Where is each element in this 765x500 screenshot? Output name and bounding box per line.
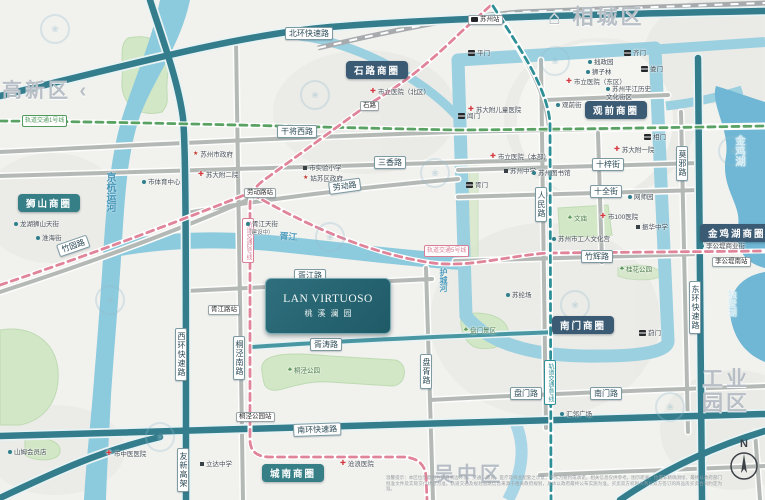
hospital-label: ✚市中医医院 [106, 450, 146, 459]
park-label: ♣文庙 [568, 215, 587, 224]
place-label: 观前街 [556, 102, 582, 110]
place-icon [586, 70, 590, 74]
place-label: 苏纶场 [506, 292, 532, 300]
road-name-label: 十全街 [590, 185, 622, 198]
compass: N [726, 438, 762, 486]
water-name: 京杭运河 [102, 172, 117, 212]
place-label: 市体育中心 [142, 179, 181, 187]
gate-label: 齐门 [624, 50, 646, 58]
place-label: 汇邻广场 [560, 411, 592, 419]
business-circle-badge: 狮山商圈 [18, 194, 80, 212]
compass-north-label: N [726, 438, 762, 450]
map-labels-layer: 高新区 ‹⌂ 相城区工业 园区吴中区京杭运河护城河金鸡湖独墅湖胥江北环快速路干将… [0, 0, 765, 500]
park-icon: ♣ [288, 367, 292, 375]
school-label: 市实验小学 [303, 165, 342, 173]
school-icon [636, 225, 640, 229]
gate-label: 娄门 [641, 66, 663, 74]
gate-icon [624, 50, 631, 56]
gov-label: ★姑苏区政府 [303, 175, 343, 184]
hospital-icon: ✚ [600, 213, 606, 222]
business-circle-badge: 南门商圈 [552, 316, 614, 334]
park-icon: ♣ [568, 215, 572, 223]
place-icon [36, 236, 40, 240]
park-label: ♣桂花公园 [620, 266, 652, 275]
water-name: 胥江 [279, 229, 298, 243]
hospital-label: ✚市立医院（北区） [370, 88, 430, 97]
hospital-label: ✚苏大附一院 [614, 146, 654, 155]
business-circle-badge: 金鸡湖商圈 [700, 224, 765, 242]
road-name-label: 十梓街 [592, 158, 624, 171]
road-name-label: 北环快速路 [285, 27, 333, 40]
place-icon [8, 450, 12, 454]
place-icon [628, 195, 632, 199]
place-label: 网师园 [628, 194, 654, 202]
school-label: 振华中学 [636, 224, 668, 232]
place-label: 山姆会员店 [8, 449, 47, 457]
place-icon [506, 293, 510, 297]
place-label: 胥江天街 [246, 221, 278, 229]
gate-icon [466, 182, 473, 188]
place-icon [556, 103, 560, 107]
hospital-label: ✚市100医院 [600, 213, 638, 222]
place-label: 苏州平江历史 文化街区 [606, 86, 651, 102]
place-icon [532, 171, 536, 175]
place-icon [606, 87, 610, 91]
place-label: 龙湖狮山天街 [14, 221, 59, 229]
gate-label: 相门 [644, 134, 666, 142]
road-name-label: 胥涛路 [310, 338, 342, 351]
metro-station-label: 桐泾公园站 [236, 412, 275, 422]
water-name: 独墅湖 [726, 290, 739, 317]
place-icon [246, 222, 250, 226]
gov-label: ★苏州市政府 [193, 151, 233, 160]
gate-label: 阊门 [458, 113, 480, 121]
school-icon [504, 169, 508, 173]
business-circle-badge: 观前商圈 [585, 101, 647, 119]
metro-station-label: 胥江路站 [208, 305, 240, 315]
road-name-label: 桐泾南路 [233, 336, 245, 380]
metro-line-label: 轨道交通5号线 [424, 245, 469, 257]
gate-icon [639, 330, 646, 336]
park-icon: ♣ [620, 266, 624, 274]
road-name-label: 盘胥路 [420, 354, 432, 389]
hospital-icon: ✚ [340, 460, 346, 469]
metro-station-label: 劳动路站 [244, 188, 276, 198]
hospital-icon: ✚ [490, 153, 496, 162]
place-label: 苏州市工人文化宫 [552, 236, 610, 244]
water-name: 护城河 [438, 268, 449, 292]
district-label: 工业 园区 [702, 368, 750, 415]
business-circle-badge: 城南商圈 [262, 464, 324, 482]
school-icon [200, 462, 204, 466]
hospital-icon: ✚ [614, 146, 620, 155]
place-label: 李公堤商业街 [700, 243, 745, 251]
hospital-label: ✚沧浪医院 [340, 460, 374, 469]
gov-icon: ★ [303, 175, 308, 183]
park-label: ♣桐泾公园 [288, 367, 320, 376]
place-icon [142, 180, 146, 184]
gate-icon [644, 134, 651, 140]
metro-line-label: 轨道交通4号线 [544, 360, 556, 405]
compass-rose-icon [729, 451, 759, 481]
metro-station-label: 石路 [360, 101, 379, 111]
place-icon [700, 244, 704, 248]
place-label: 淮海街 [36, 235, 62, 243]
road-name-label: 西环快速路 [175, 328, 187, 381]
project-logo: LAN VIRTUOSO 桃溪澜园 [265, 278, 391, 334]
disclaimer-text: 温馨提示：本区位示意图为项目周边环境、交通、教育、医疗及商业配套之示意，不作为要… [386, 475, 722, 492]
hospital-icon: ✚ [106, 450, 112, 459]
water-name: 金鸡湖 [733, 135, 748, 167]
project-name-cn: 桃溪澜园 [300, 308, 357, 319]
road-name-label: 三香路 [374, 156, 406, 169]
train-icon [471, 17, 478, 22]
gate-label: 平门 [468, 50, 490, 58]
project-name-en: LAN VIRTUOSO [283, 293, 373, 305]
place-label: 拙政园 [588, 59, 614, 67]
hospital-icon: ✚ [566, 78, 572, 87]
place-icon [552, 237, 556, 241]
park-icon: ♣ [464, 327, 468, 335]
gate-icon [641, 66, 648, 72]
metro-line-label: 轨道交通1号线 [22, 115, 67, 127]
place-icon [560, 412, 564, 416]
gate-icon [468, 50, 475, 56]
business-circle-badge: 石路商圈 [346, 61, 408, 79]
road-name-label: 竹辉路 [581, 250, 613, 263]
gate-label: 葑门 [639, 330, 661, 338]
district-label: ⌂ 相城区 [548, 6, 645, 30]
road-name-label: 莫邪路 [676, 146, 688, 181]
road-name-label: 干将西路 [277, 125, 317, 138]
road-name-label: 友新高架 [177, 448, 189, 492]
map-canvas[interactable]: ❀ ❀ ❀ ❀ ❀ ❀ ❀ ❀ ❀ ❀ 高新区 ‹⌂ 相城区工业 园区吴中区京杭… [0, 0, 765, 500]
park-label: ♣盘门景区 [464, 327, 496, 336]
place-icon [588, 60, 592, 64]
hospital-icon: ✚ [198, 171, 204, 180]
road-name-label: 南环快速路 [293, 422, 341, 437]
hospital-label: ✚市立医院（本部） [490, 153, 550, 162]
place-icon [14, 222, 18, 226]
metro-station-label: 苏州站 [468, 15, 503, 25]
metro-station-label: 李公堤南站 [712, 257, 751, 267]
gov-icon: ★ [193, 151, 198, 159]
place-label: 狮子林 [586, 69, 612, 77]
road-name-label: 东环快速路 [689, 281, 701, 334]
road-name-label: 南门路 [590, 387, 622, 400]
district-label: 高新区 ‹ [2, 80, 89, 102]
gate-icon [458, 113, 465, 119]
hospital-icon: ✚ [370, 88, 376, 97]
place-label: 苏州图书馆 [532, 170, 571, 178]
school-label: 立达中学 [200, 461, 232, 469]
sub-label: （建设中） [246, 230, 274, 237]
gate-label: 胥门 [466, 182, 488, 190]
school-icon [303, 166, 307, 170]
hospital-label: ✚苏大附二院 [198, 171, 238, 180]
road-name-label: 人民路 [535, 187, 547, 222]
road-name-label: 盘门路 [510, 387, 542, 400]
